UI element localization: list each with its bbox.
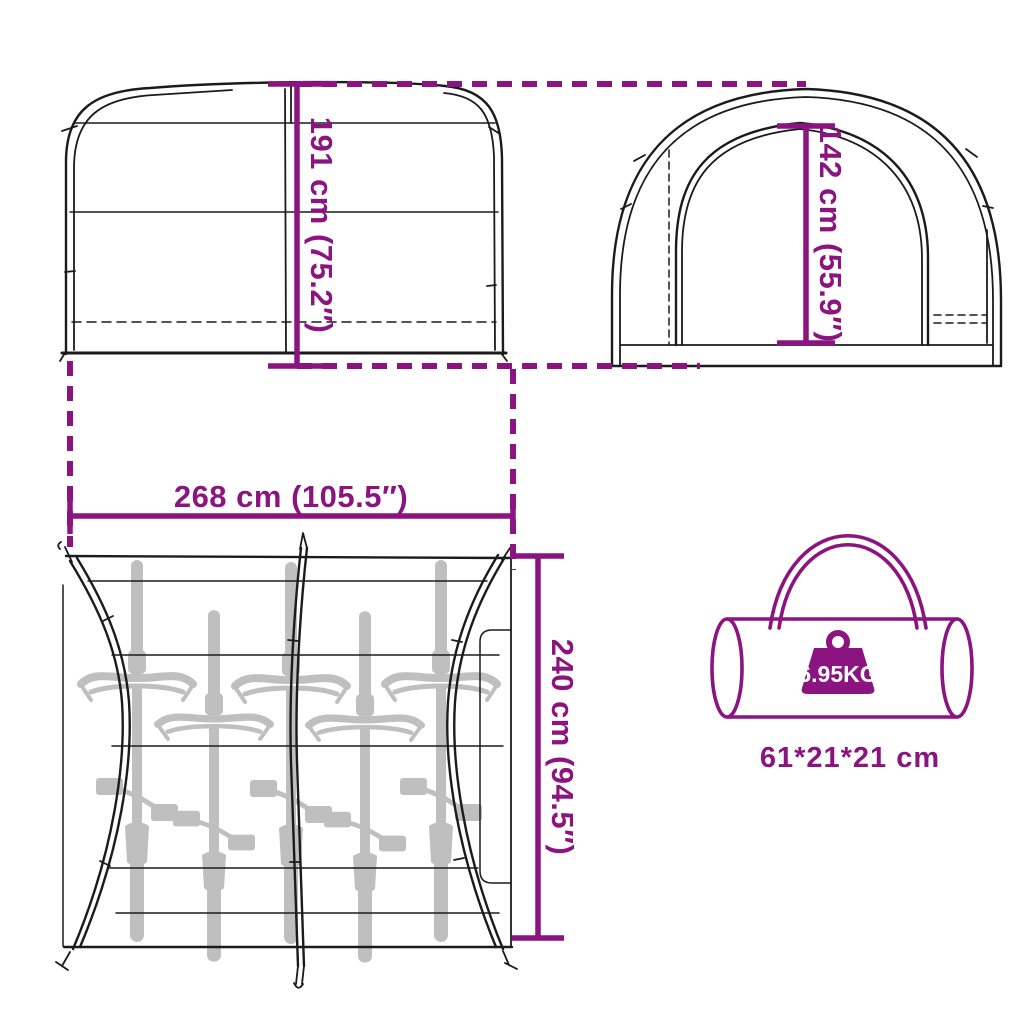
dimension-width: 268 cm (105.5″) bbox=[70, 479, 513, 534]
dimension-side-height: 191 cm (75.2″) bbox=[268, 84, 339, 366]
side-height-label: 191 cm (75.2″) bbox=[304, 117, 339, 334]
side-pole-left bbox=[74, 90, 232, 350]
dimension-depth: 240 cm (94.5″) bbox=[512, 556, 580, 938]
top-pole-left bbox=[56, 542, 130, 970]
side-center-seam bbox=[285, 89, 286, 352]
front-height-label: 142 cm (55.9″) bbox=[813, 126, 848, 343]
bag-weight-label: 6.95KG bbox=[798, 661, 877, 687]
door-outer-edge bbox=[676, 123, 928, 345]
pole-joint-tick bbox=[65, 271, 75, 272]
pole-joint-tick bbox=[634, 155, 645, 161]
weight-icon: 6.95KG bbox=[798, 633, 877, 694]
product-diagram-page: 6.95KG 61*21*21 cm 191 cm (75.2″) 142 cm… bbox=[0, 0, 1024, 1024]
pole-joint-tick bbox=[487, 285, 496, 286]
tent-side-view bbox=[60, 82, 507, 361]
bag-end-cap bbox=[942, 619, 972, 717]
carry-bag: 6.95KG 61*21*21 cm bbox=[712, 536, 972, 774]
top-side-door-panel bbox=[480, 630, 511, 883]
bike-group bbox=[81, 560, 497, 963]
side-pole-right bbox=[444, 93, 495, 350]
door-inner-edge bbox=[682, 129, 922, 345]
pole-joint-tick bbox=[983, 206, 993, 208]
dimension-front-height: 142 cm (55.9″) bbox=[777, 126, 848, 343]
bag-end-cap bbox=[712, 619, 742, 717]
tent-top-view bbox=[56, 533, 517, 988]
depth-label: 240 cm (94.5″) bbox=[545, 639, 580, 856]
bag-size-label: 61*21*21 cm bbox=[760, 742, 940, 774]
pole-joint-tick bbox=[62, 126, 77, 131]
bike-silhouette bbox=[81, 560, 193, 942]
product-diagram: 6.95KG 61*21*21 cm 191 cm (75.2″) 142 cm… bbox=[0, 0, 1024, 1024]
top-front-edge bbox=[66, 556, 511, 558]
width-label: 268 cm (105.5″) bbox=[174, 479, 408, 514]
pole-joint-tick bbox=[966, 149, 977, 157]
top-pole-right bbox=[447, 548, 517, 969]
